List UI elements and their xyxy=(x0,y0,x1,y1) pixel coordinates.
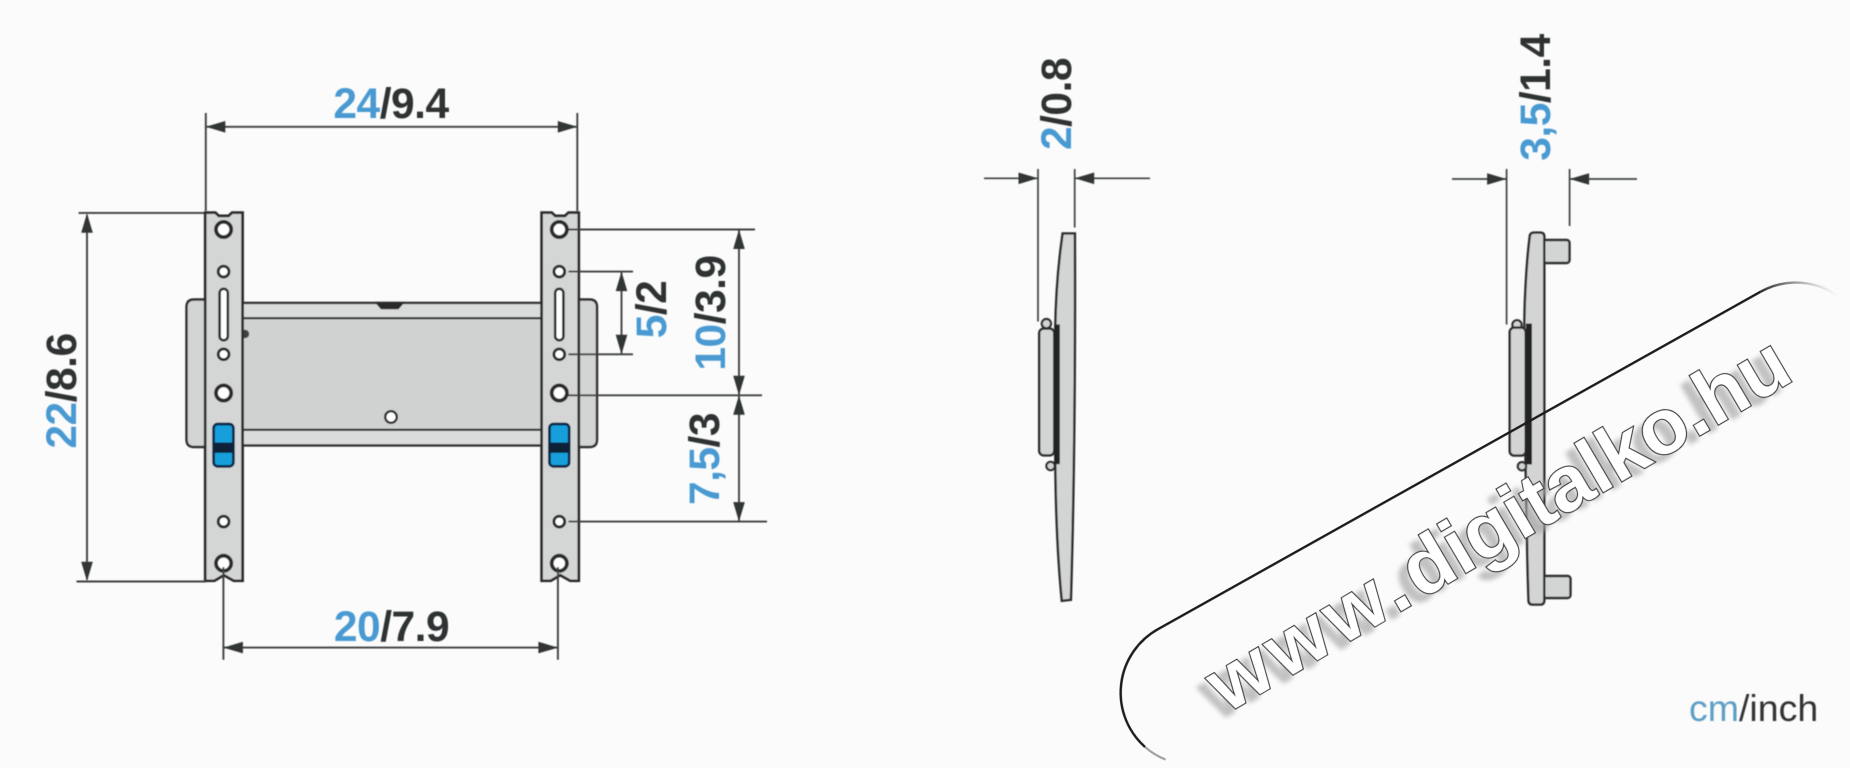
svg-text:2/0.8: 2/0.8 xyxy=(1034,58,1081,150)
svg-text:5/2: 5/2 xyxy=(629,281,676,339)
svg-text:cm/inch: cm/inch xyxy=(1689,687,1818,729)
svg-text:10/3.9: 10/3.9 xyxy=(688,255,735,370)
svg-text:24/9.4: 24/9.4 xyxy=(333,81,449,128)
svg-text:3,5/1.4: 3,5/1.4 xyxy=(1513,33,1560,160)
svg-text:7,5/3: 7,5/3 xyxy=(682,413,729,505)
svg-text:20/7.9: 20/7.9 xyxy=(334,604,449,651)
svg-text:22/8.6: 22/8.6 xyxy=(39,333,86,448)
